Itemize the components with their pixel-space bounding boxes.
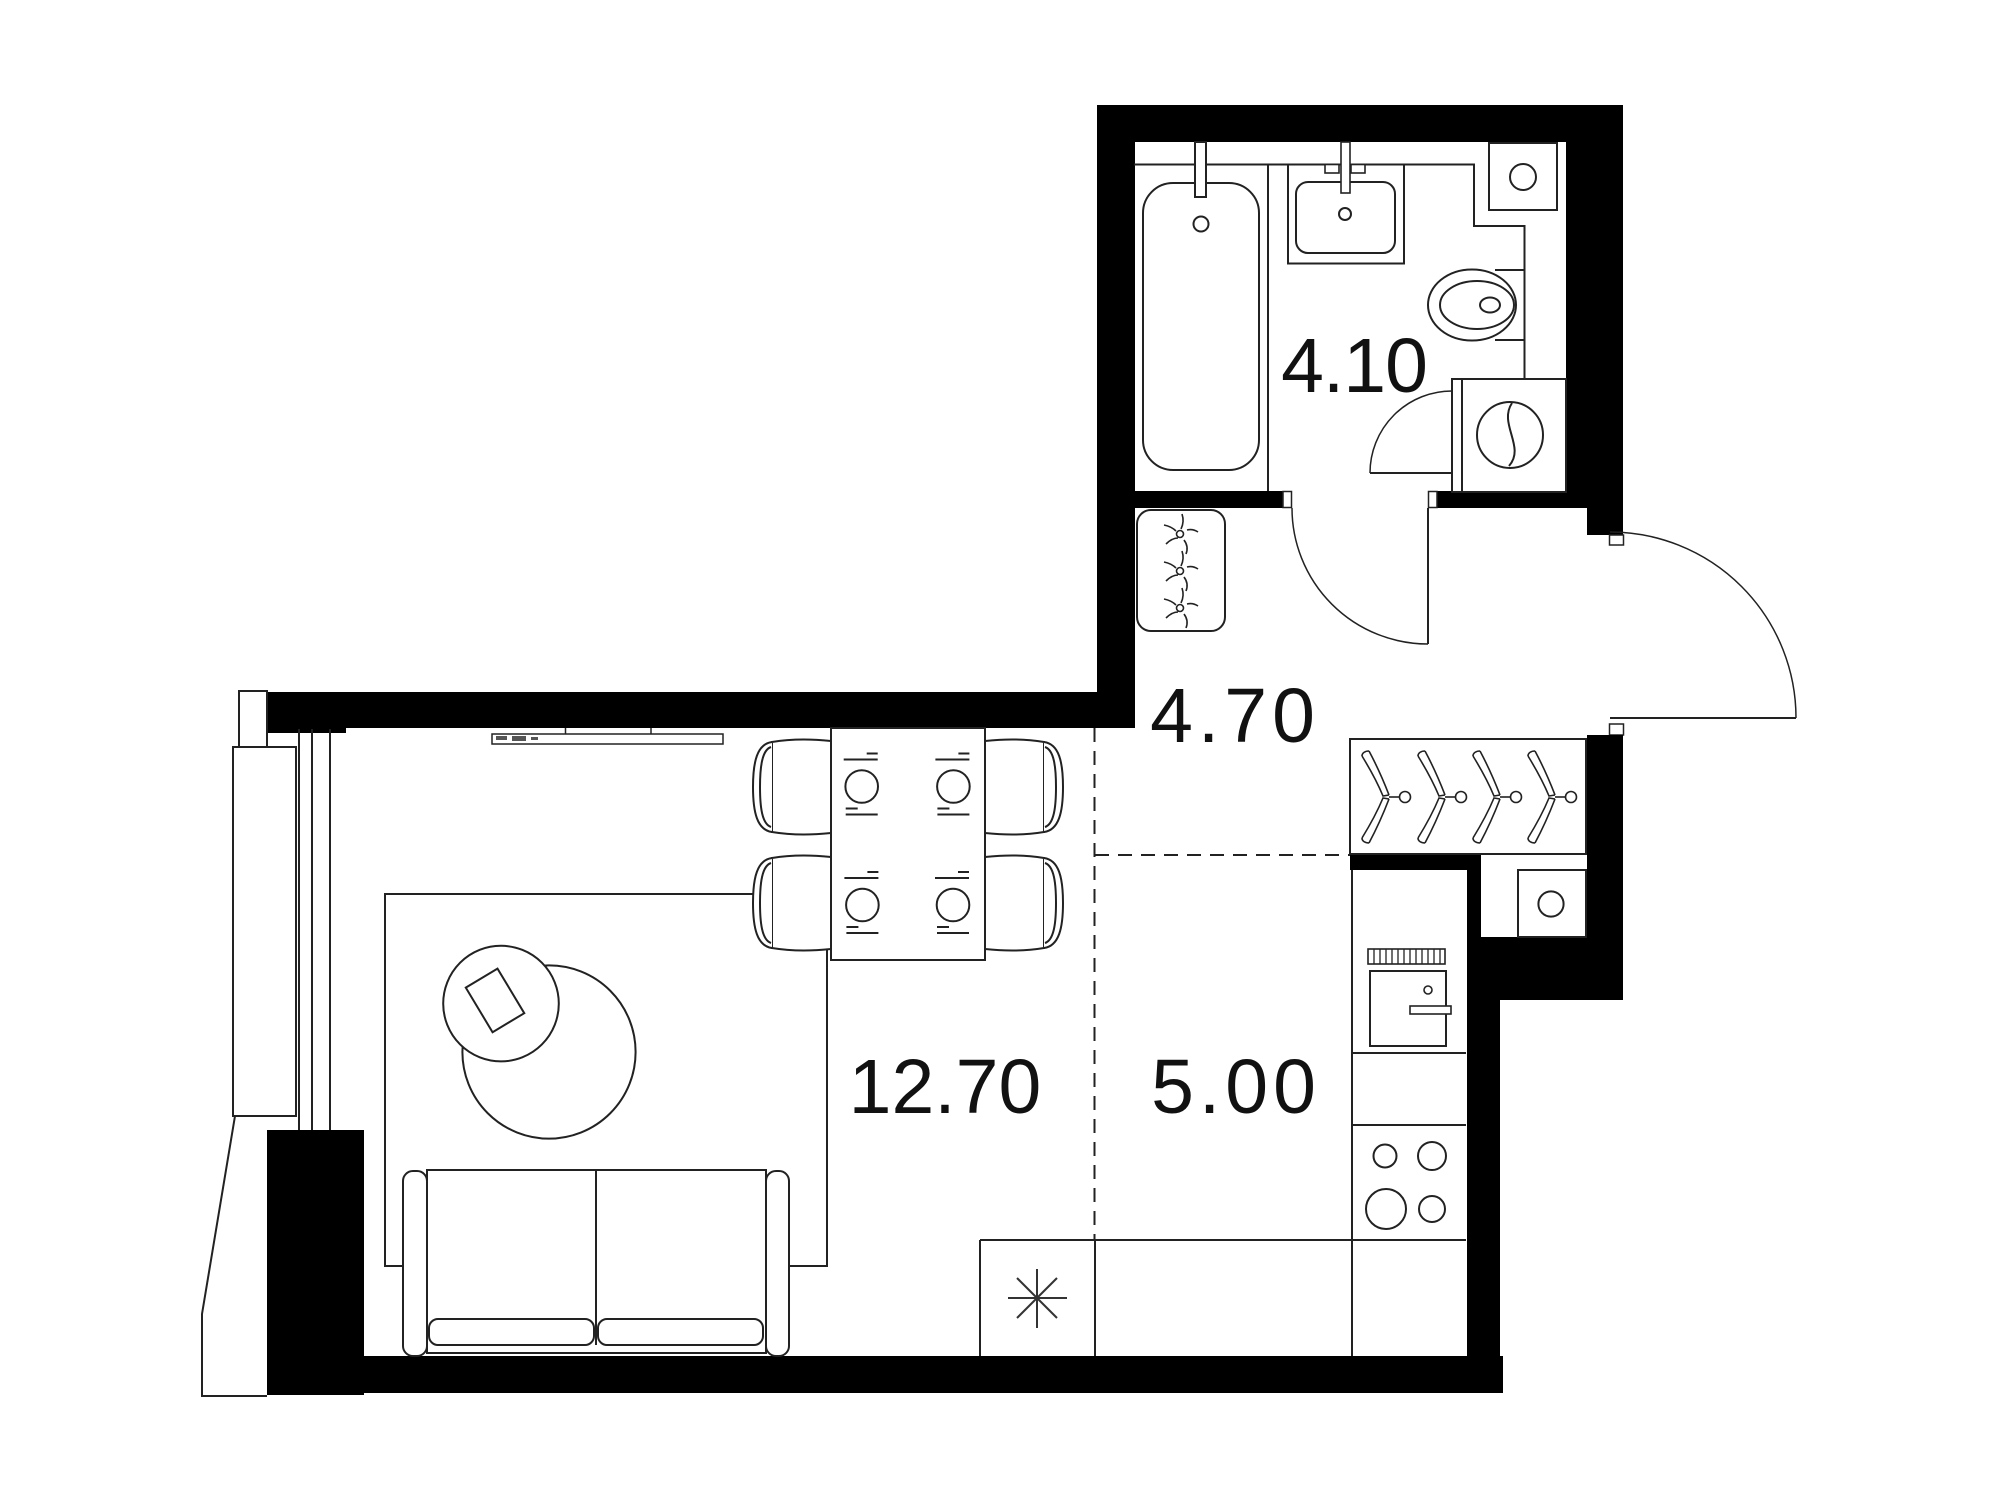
svg-text:12.70: 12.70 [849, 1044, 1042, 1130]
svg-text:4.10: 4.10 [1281, 323, 1427, 409]
svg-text:4.70: 4.70 [1150, 673, 1320, 759]
svg-text:5.00: 5.00 [1151, 1044, 1321, 1130]
